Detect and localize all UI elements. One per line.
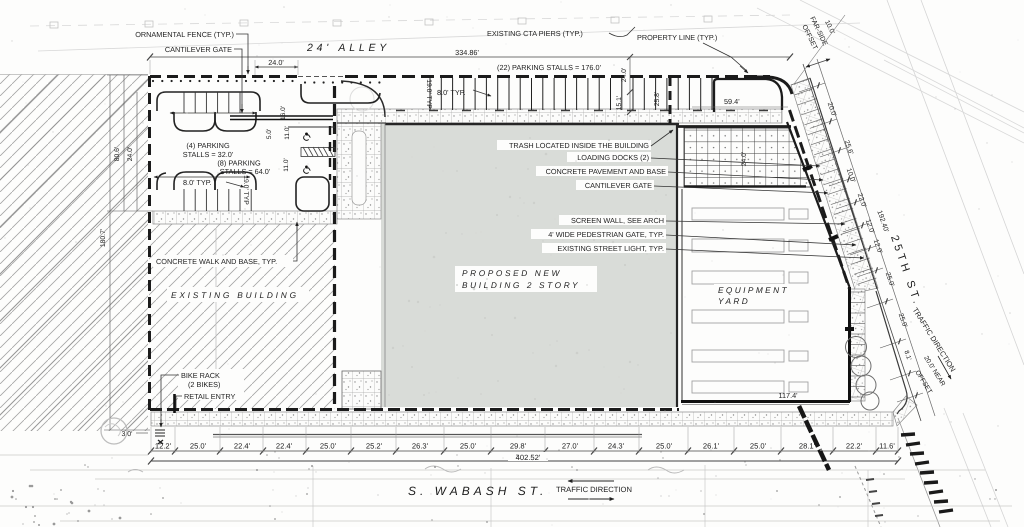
svg-text:402.52': 402.52' [516,453,541,462]
svg-text:(2 BIKES): (2 BIKES) [188,380,220,389]
svg-text:8.0' TYP.: 8.0' TYP. [437,88,466,97]
svg-text:24.0': 24.0' [268,58,284,67]
svg-text:334.86': 334.86' [455,48,479,57]
svg-text:ORNAMENTAL FENCE (TYP.): ORNAMENTAL FENCE (TYP.) [135,30,234,39]
svg-text:25.0': 25.0' [750,442,767,451]
svg-text:11.6': 11.6' [879,442,895,451]
svg-text:27.0': 27.0' [562,442,579,451]
svg-text:EXISTING STREET LIGHT, TYP.: EXISTING STREET LIGHT, TYP. [557,244,664,253]
svg-text:EXISTING CTA PIERS (TYP.): EXISTING CTA PIERS (TYP.) [487,29,583,38]
svg-text:TRASH LOCATED INSIDE THE BUILD: TRASH LOCATED INSIDE THE BUILDING [509,141,649,150]
svg-text:25.0': 25.0' [190,442,207,451]
svg-text:29.8': 29.8' [510,442,527,451]
svg-text:59.4': 59.4' [724,97,740,106]
svg-text:YARD: YARD [718,296,750,306]
svg-text:BUILDING 2 STORY: BUILDING 2 STORY [462,280,580,290]
svg-text:24.0': 24.0' [621,68,628,83]
svg-text:(22) PARKING STALLS = 176.0': (22) PARKING STALLS = 176.0' [497,63,602,72]
svg-text:26.3': 26.3' [412,442,429,451]
svg-text:12.2': 12.2' [155,442,172,451]
svg-text:RETAIL ENTRY: RETAIL ENTRY [184,392,235,401]
svg-text:11.0': 11.0' [284,126,291,139]
svg-text:STALLS = 64.0': STALLS = 64.0' [220,167,271,176]
svg-text:117.4': 117.4' [778,391,798,400]
svg-text:4' WIDE PEDESTRIAN GATE, TYP.: 4' WIDE PEDESTRIAN GATE, TYP. [548,230,664,239]
svg-text:26.1': 26.1' [703,442,720,451]
svg-text:25.8': 25.8' [654,92,661,107]
svg-text:22.4': 22.4' [234,442,251,451]
svg-text:180.7': 180.7' [100,229,107,247]
svg-text:PROPOSED NEW: PROPOSED NEW [462,268,562,278]
svg-text:24.3': 24.3' [608,442,625,451]
svg-text:25.2': 25.2' [366,442,383,451]
svg-text:BIKE RACK: BIKE RACK [181,371,220,380]
svg-text:PROPERTY LINE (TYP.): PROPERTY LINE (TYP.) [637,33,717,42]
svg-text:16.0': 16.0' [280,106,287,120]
svg-text:EQUIPMENT: EQUIPMENT [718,285,789,295]
svg-text:25.0': 25.0' [460,442,477,451]
svg-text:8.0' TYP.: 8.0' TYP. [183,178,212,187]
svg-text:11.0': 11.0' [283,158,290,171]
svg-text:28.1': 28.1' [799,442,816,451]
svg-text:24.0': 24.0' [127,147,134,162]
svg-text:25.0': 25.0' [656,442,673,451]
svg-text:19.0' TYP: 19.0' TYP [242,175,249,205]
svg-text:CONCRETE WALK AND BASE, TYP.: CONCRETE WALK AND BASE, TYP. [156,257,277,266]
svg-text:24' ALLEY: 24' ALLEY [306,42,390,54]
svg-text:19.0' TYP: 19.0' TYP [425,79,432,109]
svg-text:22.2': 22.2' [846,442,863,451]
svg-text:S. WABASH ST.: S. WABASH ST. [408,484,547,498]
svg-text:(4) PARKING: (4) PARKING [186,141,230,150]
svg-text:LOADING DOCKS (2): LOADING DOCKS (2) [577,153,649,162]
svg-text:TRAFFIC DIRECTION: TRAFFIC DIRECTION [556,485,632,494]
svg-text:22.4': 22.4' [276,442,293,451]
svg-text:EXISTING BUILDING: EXISTING BUILDING [171,290,299,300]
svg-text:80.6': 80.6' [114,147,121,162]
svg-text:CONCRETE PAVEMENT AND BASE: CONCRETE PAVEMENT AND BASE [546,167,667,176]
svg-text:24.0': 24.0' [741,152,748,167]
svg-text:CANTILEVER GATE: CANTILEVER GATE [585,181,652,190]
svg-text:SCREEN WALL, SEE ARCH: SCREEN WALL, SEE ARCH [571,216,664,225]
svg-text:5.0': 5.0' [266,129,273,139]
svg-text:15.1': 15.1' [616,96,623,111]
